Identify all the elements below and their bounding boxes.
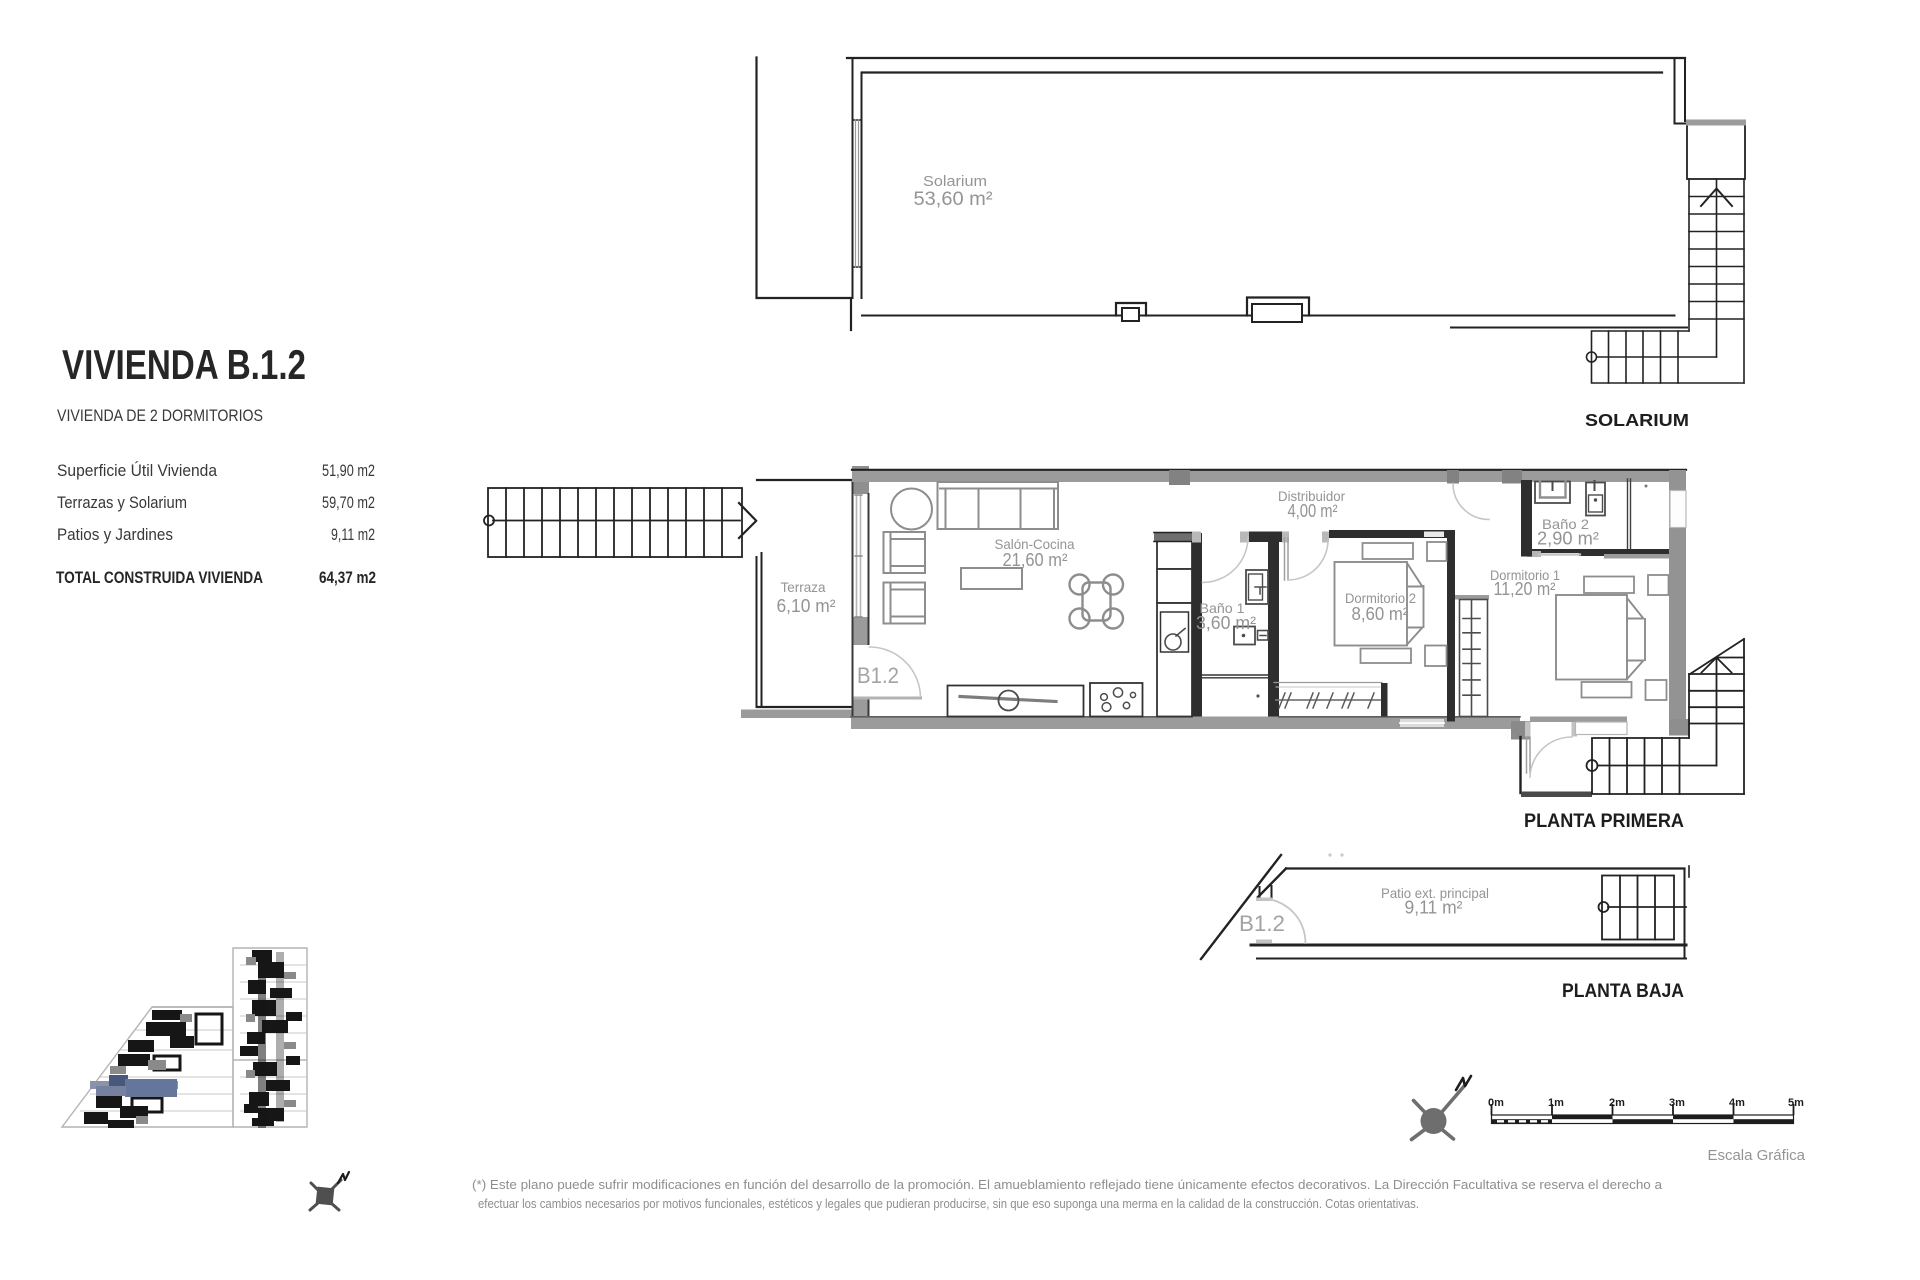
svg-text:VIVIENDA B.1.2: VIVIENDA B.1.2: [62, 341, 306, 388]
svg-text:1m: 1m: [1548, 1097, 1564, 1109]
svg-text:Patios y Jardines: Patios y Jardines: [57, 526, 173, 544]
svg-text:59,70 m2: 59,70 m2: [322, 494, 375, 512]
svg-text:0m: 0m: [1488, 1097, 1504, 1109]
svg-text:PLANTA BAJA: PLANTA BAJA: [1562, 981, 1684, 1002]
svg-text:11,20 m²: 11,20 m²: [1494, 579, 1556, 599]
svg-text:PLANTA PRIMERA: PLANTA PRIMERA: [1524, 811, 1684, 832]
svg-text:21,60 m²: 21,60 m²: [1003, 550, 1068, 570]
svg-text:TOTAL CONSTRUIDA VIVIENDA: TOTAL CONSTRUIDA VIVIENDA: [56, 569, 263, 587]
svg-text:B1.2: B1.2: [1239, 911, 1285, 936]
svg-text:B1.2: B1.2: [857, 663, 899, 688]
svg-text:Terrazas y Solarium: Terrazas y Solarium: [57, 494, 187, 512]
svg-text:SOLARIUM: SOLARIUM: [1585, 410, 1689, 430]
svg-text:53,60 m²: 53,60 m²: [914, 189, 993, 210]
svg-text:9,11 m2: 9,11 m2: [331, 526, 375, 544]
svg-text:3,60 m²: 3,60 m²: [1196, 613, 1256, 633]
svg-text:VIVIENDA DE 2 DORMITORIOS: VIVIENDA DE 2 DORMITORIOS: [57, 406, 263, 425]
svg-text:2,90 m²: 2,90 m²: [1537, 529, 1599, 549]
svg-text:Terraza: Terraza: [781, 579, 826, 595]
svg-text:8,60 m²: 8,60 m²: [1352, 604, 1409, 624]
svg-text:Escala Gráfica: Escala Gráfica: [1707, 1147, 1805, 1164]
svg-text:9,11 m²: 9,11 m²: [1405, 898, 1463, 918]
svg-text:Solarium: Solarium: [923, 173, 987, 190]
svg-text:(*) Este plano puede sufrir mo: (*) Este plano puede sufrir modificacion…: [472, 1177, 1663, 1192]
svg-text:6,10 m²: 6,10 m²: [777, 596, 836, 616]
svg-text:4m: 4m: [1729, 1097, 1745, 1109]
svg-text:51,90 m2: 51,90 m2: [322, 462, 375, 480]
svg-text:5m: 5m: [1788, 1097, 1804, 1109]
svg-text:3m: 3m: [1669, 1097, 1685, 1109]
svg-text:efectuar los cambios necesario: efectuar los cambios necesarios por moti…: [478, 1196, 1419, 1211]
svg-text:4,00 m²: 4,00 m²: [1288, 501, 1338, 521]
svg-text:64,37 m2: 64,37 m2: [319, 569, 376, 587]
svg-text:Superficie Útil Vivienda: Superficie Útil Vivienda: [57, 461, 218, 480]
svg-text:2m: 2m: [1609, 1097, 1625, 1109]
